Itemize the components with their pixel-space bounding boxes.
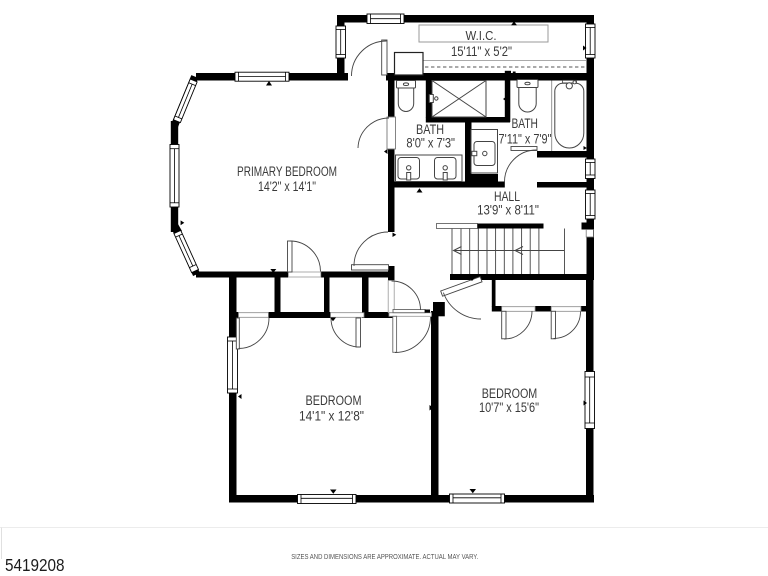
svg-text:15'11" x 5'2": 15'11" x 5'2": [451, 44, 512, 59]
svg-text:BEDROOM: BEDROOM: [306, 393, 362, 408]
svg-text:13'9" x 8'11": 13'9" x 8'11": [477, 203, 539, 218]
svg-text:BATH: BATH: [511, 116, 538, 131]
svg-text:8'0" x 7'3": 8'0" x 7'3": [406, 135, 455, 150]
svg-text:10'7" x 15'6": 10'7" x 15'6": [479, 400, 539, 415]
svg-text:14'1" x 12'8": 14'1" x 12'8": [299, 409, 364, 424]
svg-text:7'11" x 7'9": 7'11" x 7'9": [499, 131, 552, 146]
svg-text:PRIMARY BEDROOM: PRIMARY BEDROOM: [237, 164, 337, 179]
svg-text:5419208: 5419208: [5, 555, 65, 575]
svg-text:14'2" x 14'1": 14'2" x 14'1": [258, 179, 316, 194]
svg-text:BEDROOM: BEDROOM: [482, 386, 538, 401]
svg-text:W.I.C.: W.I.C.: [466, 28, 497, 43]
svg-text:SIZES AND DIMENSIONS ARE APPRO: SIZES AND DIMENSIONS ARE APPROXIMATE. AC…: [291, 554, 478, 561]
